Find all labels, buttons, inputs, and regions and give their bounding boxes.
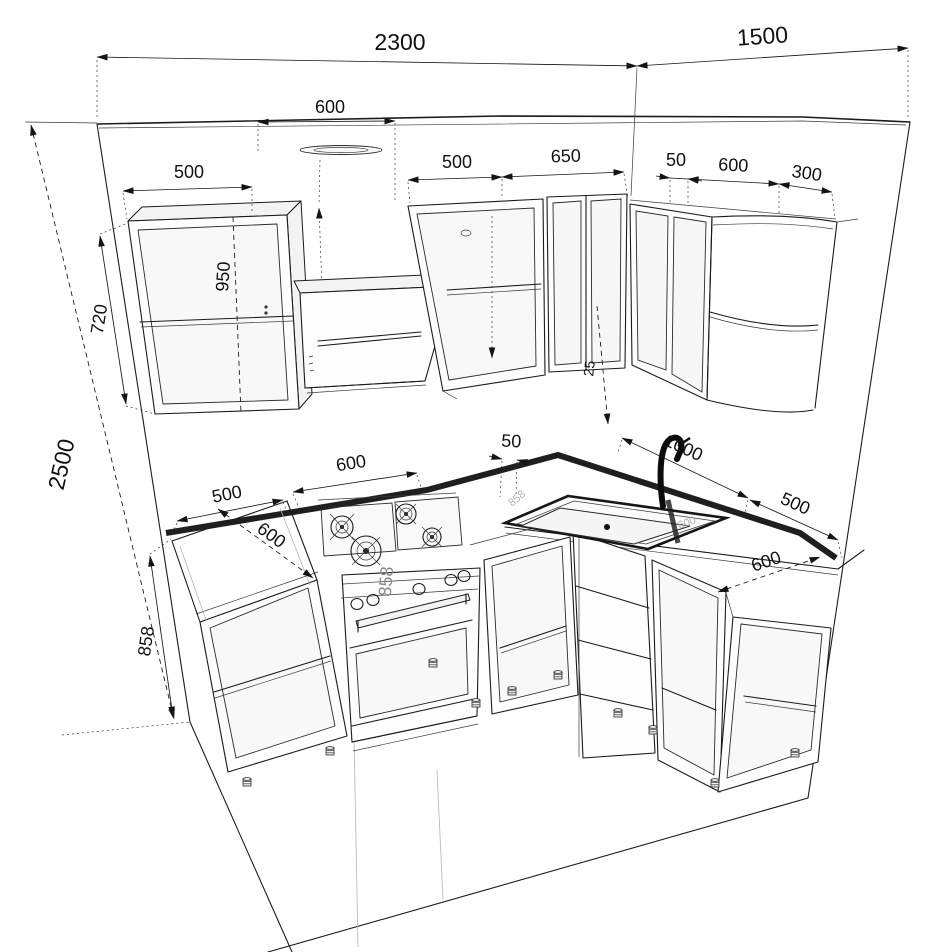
- dim-label-baseright-500: 500: [778, 488, 814, 518]
- dim-label-uppermid-500: 500: [442, 152, 472, 172]
- dim-upper-mid-width: 500: [408, 152, 502, 203]
- dim-label-depthleft-600: 600: [253, 518, 289, 552]
- upper-right-wall-cabinets: [630, 200, 858, 412]
- base-left-open-cabinet: [172, 501, 347, 772]
- dim-label-2300: 2300: [374, 29, 425, 55]
- sink-drain: [604, 524, 610, 530]
- dim-label-stove-858: 858: [375, 566, 398, 598]
- upper-left-wall-cabinet: [128, 201, 312, 414]
- dim-right-wall-width: 1500: [637, 21, 908, 119]
- dim-upper-mid2-width: 650: [502, 145, 628, 198]
- dim-label-upperright-600: 600: [718, 154, 749, 176]
- dim-label-ghost-858: 858: [506, 488, 528, 509]
- drawing-canvas: 2300 1500 2500 600 500 500: [0, 0, 934, 952]
- dim-label-stove-600: 600: [335, 451, 368, 475]
- dim-label-650: 650: [550, 145, 581, 166]
- ceiling-lamp: [300, 146, 382, 155]
- dim-upper-corner-cab-width: 300: [779, 161, 835, 219]
- base-right-open-cabinet: [718, 593, 831, 792]
- dim-upper-corner-gap: 50: [656, 150, 702, 204]
- dim-stove-height: 858: [375, 566, 398, 598]
- base-right-open-section: [652, 560, 726, 792]
- dim-upper-right-width: 600: [688, 154, 779, 214]
- base-corner-open-cabinet: [470, 521, 578, 714]
- dim-label-baseleft-500: 500: [210, 481, 243, 506]
- dim-sink-run: 1000: [618, 430, 748, 512]
- dim-label-300: 300: [791, 161, 824, 185]
- upper-middle-door-cabinet: [547, 194, 627, 372]
- kitchen-technical-drawing: 2300 1500 2500 600 500 500: [0, 0, 934, 952]
- dim-label-720: 720: [87, 303, 111, 336]
- dim-label-upperleft-500: 500: [174, 162, 204, 182]
- dim-counter-depth-right: 600: [718, 547, 820, 592]
- dim-label-858: 858: [134, 625, 158, 658]
- dim-label-25: 25: [580, 360, 598, 377]
- dim-label-2500: 2500: [43, 436, 80, 492]
- dim-label-base-50: 50: [501, 430, 522, 451]
- dim-label-1500: 1500: [736, 21, 789, 51]
- dim-back-wall-width: 2300: [97, 29, 637, 119]
- dim-base-height: 858: [134, 539, 173, 717]
- dim-label-hood-600: 600: [315, 97, 345, 117]
- room-shell: [25, 68, 910, 952]
- sink-drawer-cabinet: [573, 532, 655, 758]
- dim-label-950: 950: [212, 261, 234, 292]
- dim-label-upper-50: 50: [666, 150, 686, 170]
